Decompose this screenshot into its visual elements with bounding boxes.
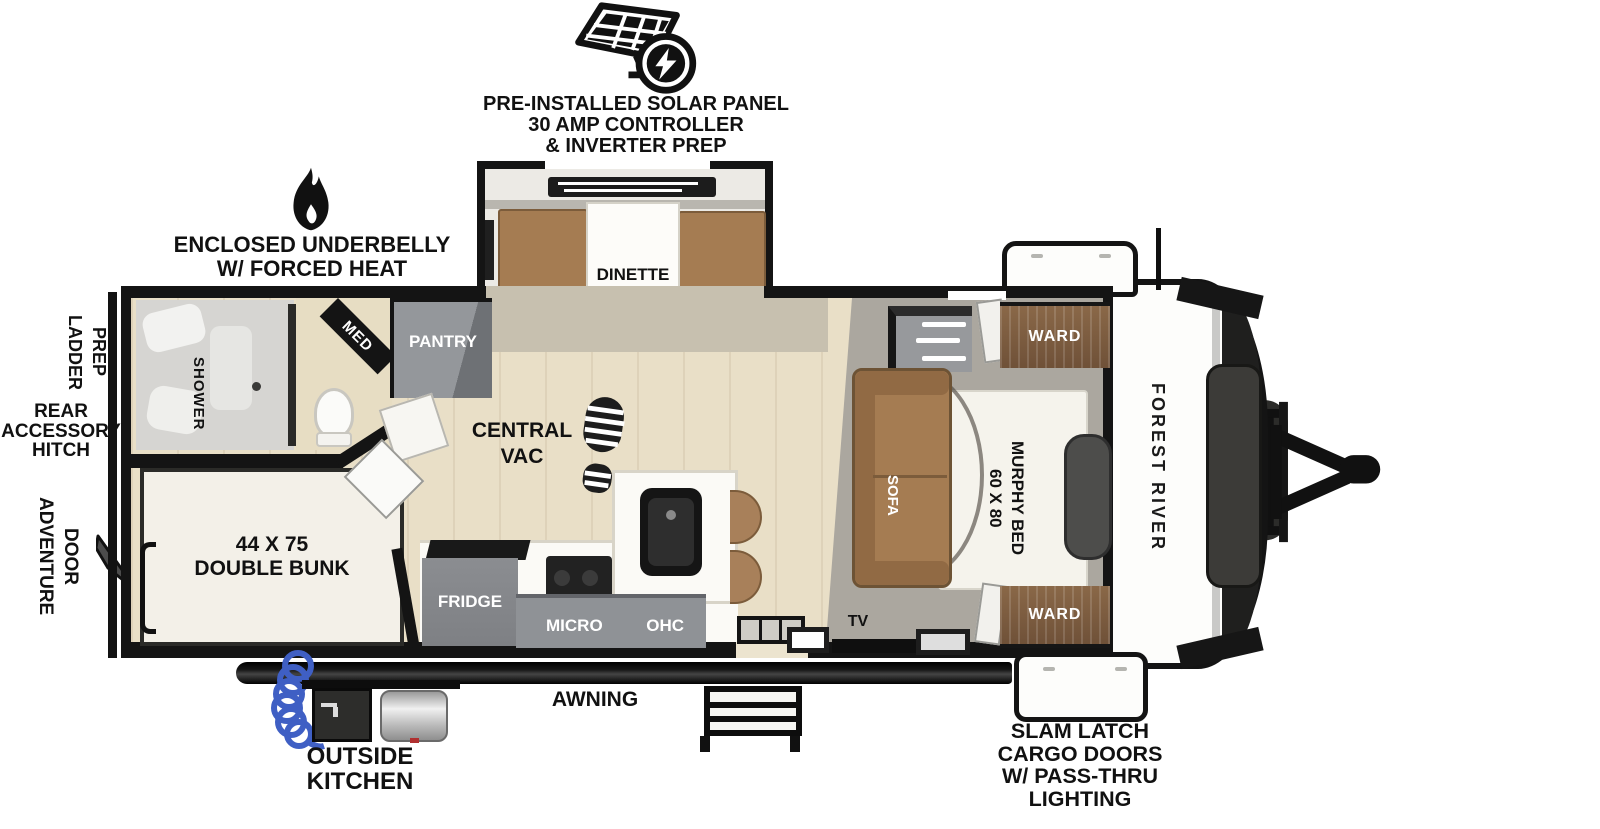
- ward-top-label: WARD: [1029, 328, 1082, 346]
- hutch-shelf-stripe: [922, 356, 966, 361]
- shower-head-dot: [252, 382, 261, 391]
- dinette-side-window-left: [485, 220, 494, 280]
- ladder-prep-word-1: LADDER: [64, 296, 85, 408]
- dinette-label: DINETTE: [568, 265, 698, 285]
- step-line: [759, 620, 762, 640]
- murphy-size-text: 60 X 80: [985, 418, 1005, 578]
- pantry-cabinet: PANTRY: [390, 298, 492, 398]
- rear-hitch-line-1: REAR: [0, 402, 122, 422]
- cargo-door-bottom: [1014, 652, 1148, 722]
- floor-tan-dinette-zone: [478, 298, 828, 352]
- solar-line-3: & INVERTER PREP: [436, 136, 836, 157]
- solar-callout: PRE-INSTALLED SOLAR PANEL 30 AMP CONTROL…: [436, 94, 836, 157]
- step-rung: [710, 702, 796, 708]
- hinge-mark: [1115, 667, 1127, 671]
- central-vac-line-1: CENTRAL: [462, 418, 582, 444]
- toilet-bowl: [314, 388, 354, 438]
- shower-label: SHOWER: [190, 336, 212, 451]
- wardrobe-top: WARD: [1000, 302, 1110, 368]
- awning-label: AWNING: [500, 688, 690, 712]
- pantry-label: PANTRY: [394, 332, 492, 352]
- window-blind-slat: [558, 182, 698, 185]
- sink-basin: [648, 498, 694, 566]
- brand-text: FOREST RIVER: [1147, 348, 1168, 588]
- kitchen-sink: [640, 488, 702, 576]
- murphy-name-text: MURPHY BED: [1007, 418, 1027, 578]
- adventure-door-word-1: ADVENTURE: [34, 470, 56, 642]
- fridge-top-3d: [426, 540, 531, 560]
- sink-faucet: [666, 510, 676, 520]
- solar-panel-icon: [570, 0, 710, 96]
- dinette-window: [548, 177, 716, 197]
- step-foot: [700, 736, 710, 752]
- hutch-shelf-stripe: [922, 322, 966, 327]
- entertainment-hutch: [888, 306, 972, 372]
- bed-pillow: [1064, 434, 1112, 560]
- slam-latch-callout: SLAM LATCH CARGO DOORS W/ PASS-THRU LIGH…: [980, 720, 1180, 810]
- slam-latch-line-1: SLAM LATCH: [980, 720, 1180, 743]
- micro-ohc-cabinet: MICRO OHC: [516, 594, 706, 648]
- slideout-floor-gap: [486, 286, 764, 300]
- wardrobe-bottom: WARD: [1000, 586, 1110, 648]
- adventure-door-callout: ADVENTURE DOOR: [34, 470, 81, 642]
- bathroom-wall-bottom: [131, 454, 343, 468]
- adventure-door-word-2: DOOR: [59, 470, 81, 642]
- antenna-mast: [1156, 228, 1161, 290]
- brand-label: FOREST RIVER: [1147, 348, 1175, 588]
- sofa-label: SOFA: [884, 450, 904, 540]
- slam-latch-line-4: LIGHTING: [980, 788, 1180, 811]
- window-blind-slat: [564, 189, 682, 192]
- rear-hitch-line-3: HITCH: [0, 441, 122, 461]
- ladder-prep-word-2: PREP: [88, 296, 109, 408]
- hinge-mark: [1043, 667, 1055, 671]
- rear-hitch-line-2: ACCESSORY: [0, 422, 122, 442]
- ladder-prep-callout: LADDER PREP: [64, 296, 109, 408]
- micro-label: MICRO: [546, 616, 603, 636]
- burner: [582, 570, 598, 586]
- burner: [554, 570, 570, 586]
- sofa-armrest: [855, 371, 949, 395]
- toilet-tank: [316, 432, 352, 447]
- floorplan-canvas: PRE-INSTALLED SOLAR PANEL 30 AMP CONTROL…: [0, 0, 1600, 829]
- sofa-back: [855, 371, 875, 585]
- slam-latch-line-2: CARGO DOORS: [980, 743, 1180, 766]
- solar-line-1: PRE-INSTALLED SOLAR PANEL: [436, 94, 836, 115]
- solar-line-2: 30 AMP CONTROLLER: [436, 115, 836, 136]
- slam-latch-line-3: W/ PASS-THRU: [980, 765, 1180, 788]
- central-vac-line-2: VAC: [462, 444, 582, 470]
- sofa-text: SOFA: [884, 450, 901, 540]
- underbelly-line-1: ENCLOSED UNDERBELLY: [132, 233, 492, 257]
- bunk-name-label: DOUBLE BUNK: [144, 557, 400, 581]
- tv-label: TV: [838, 613, 878, 631]
- tv: [832, 639, 922, 653]
- exterior-entry-steps: [704, 686, 802, 736]
- step-line: [779, 620, 782, 640]
- window-right-of-tv: [916, 629, 970, 655]
- step-rung: [710, 716, 796, 722]
- dinette-roof-window-gap: [545, 161, 710, 169]
- flame-icon: [284, 166, 338, 232]
- outside-kitchen-griddle: [312, 688, 372, 742]
- outside-kitchen-callout: OUTSIDE KITCHEN: [258, 744, 462, 794]
- rear-bumper: [108, 292, 117, 658]
- rock-guard: [1206, 364, 1262, 588]
- underbelly-callout: ENCLOSED UNDERBELLY W/ FORCED HEAT: [132, 233, 492, 281]
- shower-text: SHOWER: [190, 336, 207, 451]
- window-left-of-tv: [787, 627, 829, 653]
- rear-accessory-hitch-callout: REAR ACCESSORY HITCH: [0, 402, 122, 461]
- fridge: FRIDGE: [422, 558, 518, 646]
- fridge-label: FRIDGE: [438, 592, 502, 612]
- adventure-door-bracket: [140, 542, 156, 634]
- outside-kitchen-line-1: OUTSIDE: [258, 744, 462, 769]
- step-foot: [790, 736, 800, 752]
- underbelly-line-2: W/ FORCED HEAT: [132, 257, 492, 281]
- hinge-mark: [1031, 254, 1043, 258]
- sofa-armrest: [855, 561, 949, 585]
- central-vac-label: CENTRAL VAC: [462, 418, 582, 470]
- hutch-shelf-stripe: [916, 338, 960, 343]
- ward-bottom-label: WARD: [1029, 606, 1082, 624]
- outside-kitchen-tank: [380, 690, 448, 742]
- shower-stall: [136, 300, 294, 450]
- hinge-mark: [1099, 254, 1111, 258]
- griddle-faucet-dot: [333, 707, 338, 717]
- shower-glass-door: [288, 304, 296, 446]
- ohc-label: OHC: [646, 616, 684, 636]
- bunk-size-label: 44 X 75: [144, 533, 400, 557]
- murphy-bed-label: 60 X 80 MURPHY BED: [985, 418, 1027, 578]
- shower-pan: [210, 326, 252, 410]
- outside-kitchen-line-2: KITCHEN: [258, 769, 462, 794]
